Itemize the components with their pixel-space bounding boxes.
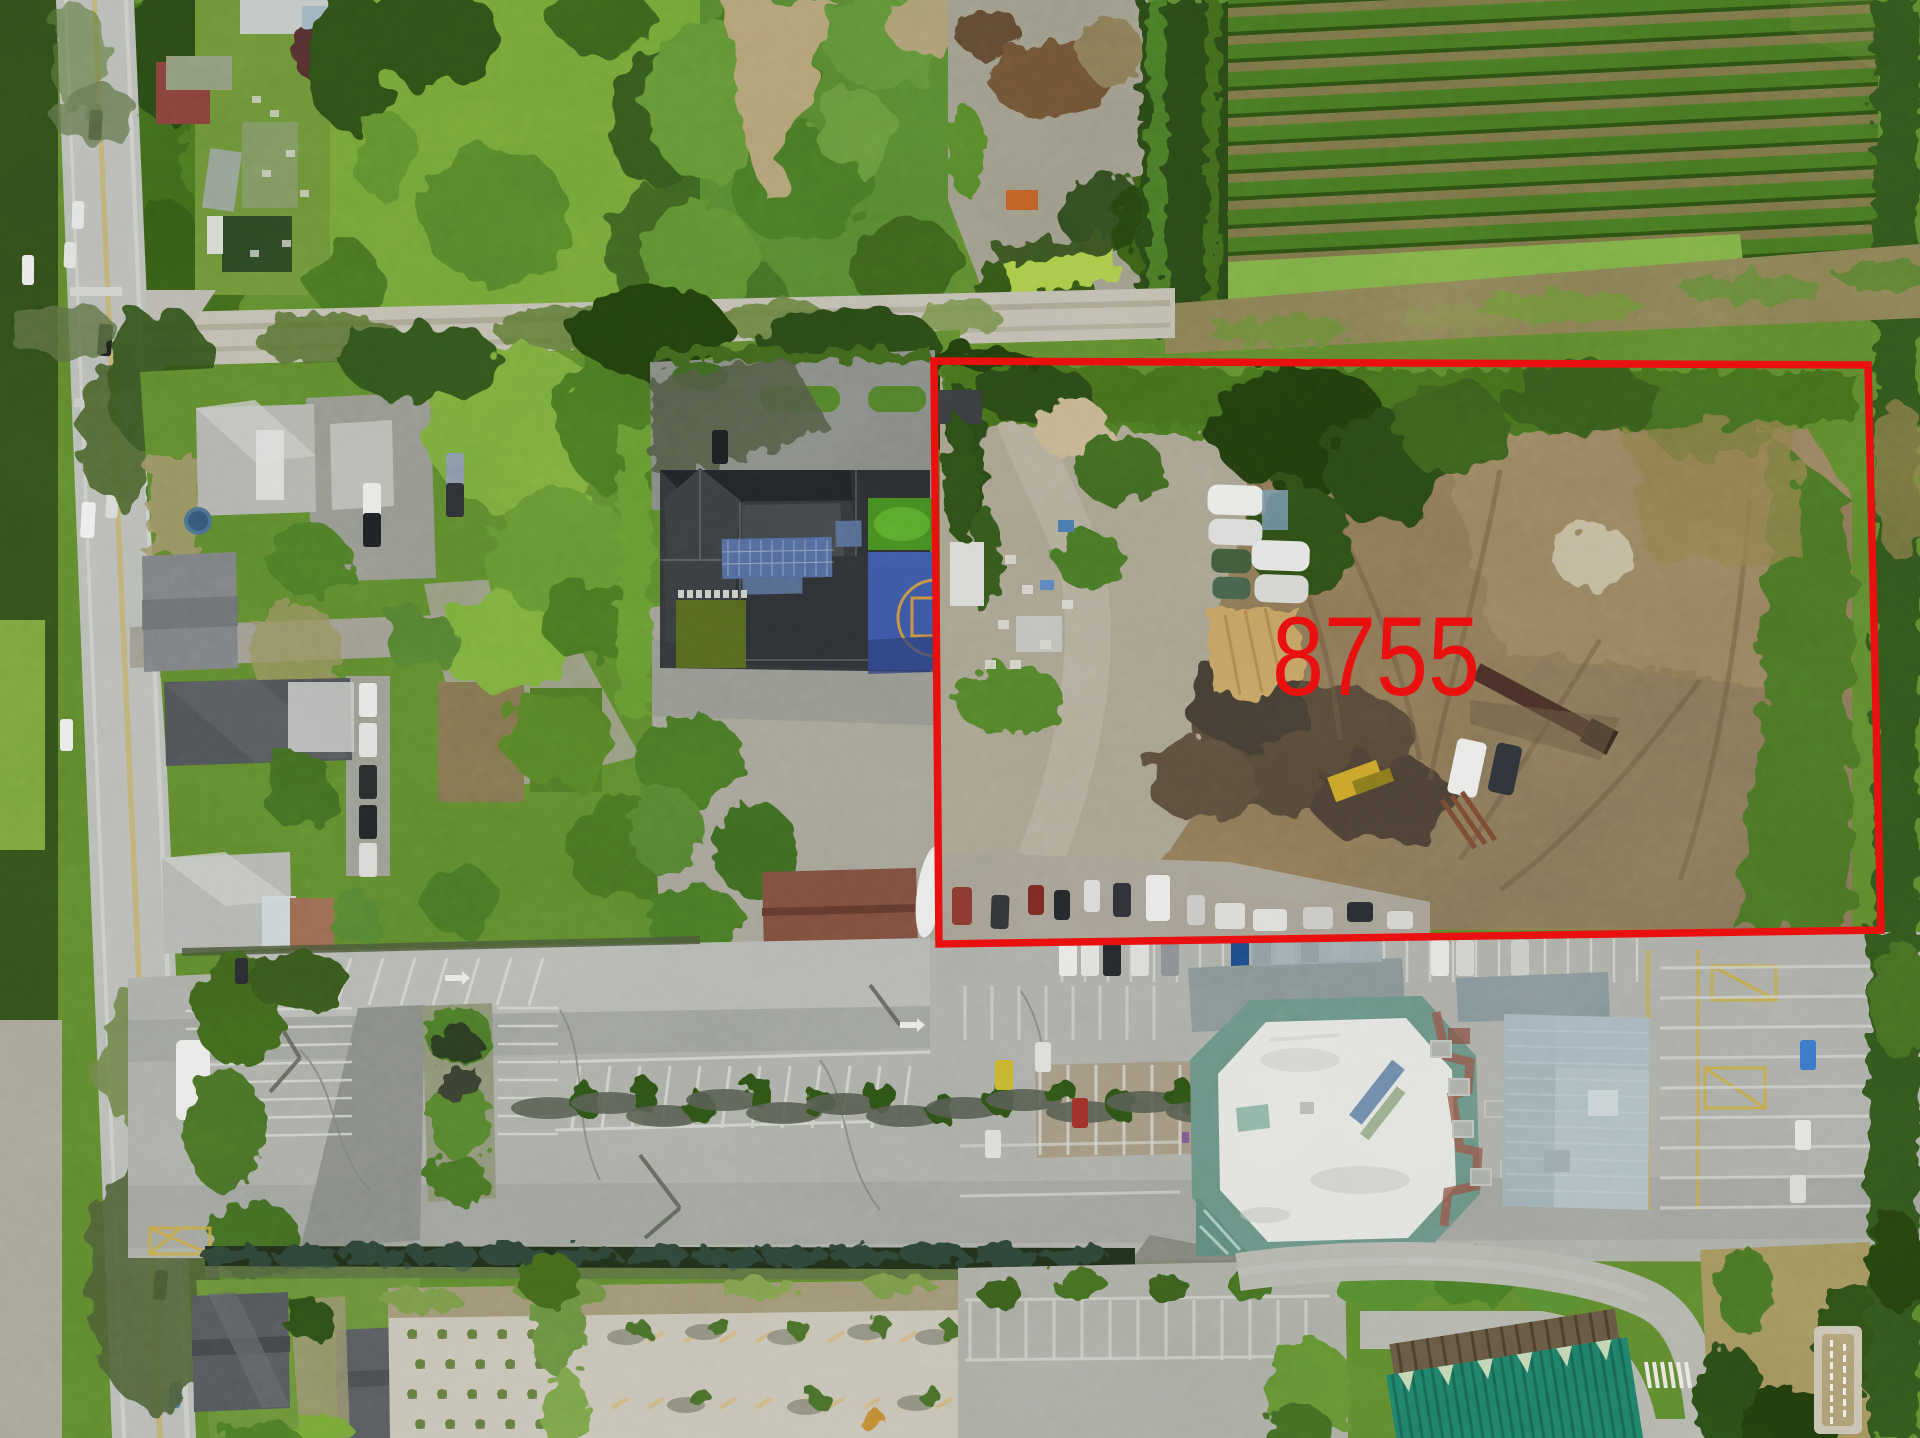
svg-text:8755: 8755: [1272, 594, 1480, 719]
